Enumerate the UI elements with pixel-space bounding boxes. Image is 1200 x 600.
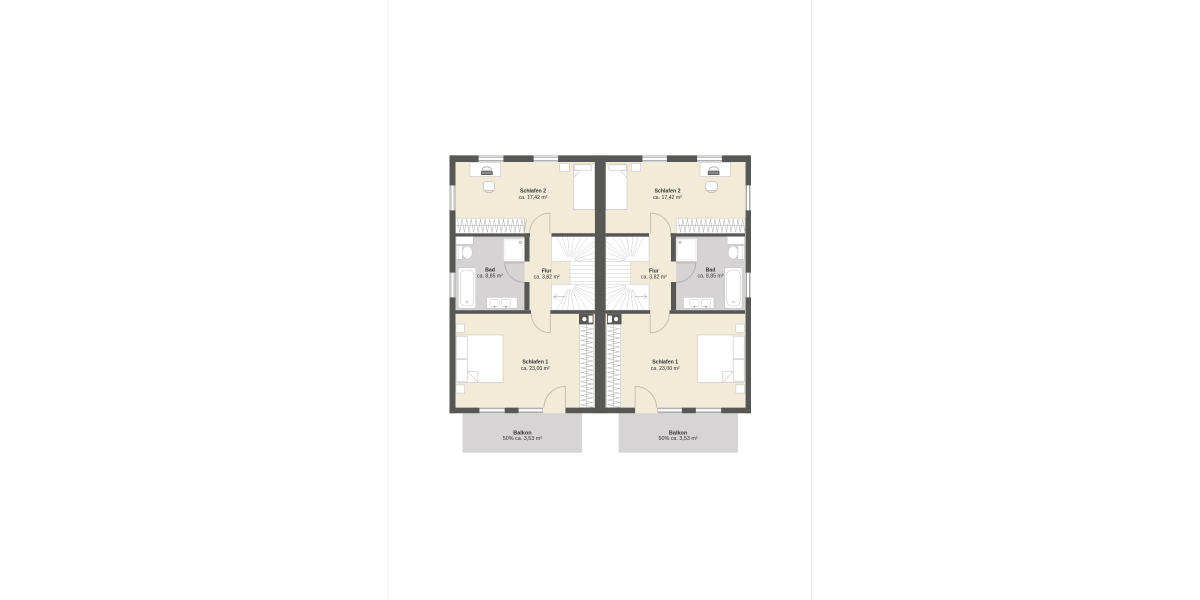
svg-text:ca. 17,42 m²: ca. 17,42 m² (519, 195, 548, 201)
svg-text:50% ca. 3,53 m²: 50% ca. 3,53 m² (503, 436, 542, 442)
svg-text:Schlafen 1: Schlafen 1 (652, 359, 678, 365)
svg-text:ca. 3,82 m²: ca. 3,82 m² (534, 274, 560, 280)
svg-text:Schlafen 2: Schlafen 2 (520, 188, 546, 194)
svg-text:50% ca. 3,53 m²: 50% ca. 3,53 m² (658, 436, 697, 442)
svg-text:ca. 8,85 m²: ca. 8,85 m² (698, 273, 724, 279)
svg-text:Schlafen 2: Schlafen 2 (655, 188, 681, 194)
svg-text:ca. 23,00 m²: ca. 23,00 m² (521, 366, 550, 372)
svg-text:Schlafen 1: Schlafen 1 (522, 359, 548, 365)
svg-text:ca. 17,42 m²: ca. 17,42 m² (653, 195, 682, 201)
svg-text:ca. 3,82 m²: ca. 3,82 m² (641, 274, 667, 280)
svg-text:ca. 8,85 m²: ca. 8,85 m² (477, 273, 503, 279)
svg-text:ca. 23,00 m²: ca. 23,00 m² (651, 366, 680, 372)
